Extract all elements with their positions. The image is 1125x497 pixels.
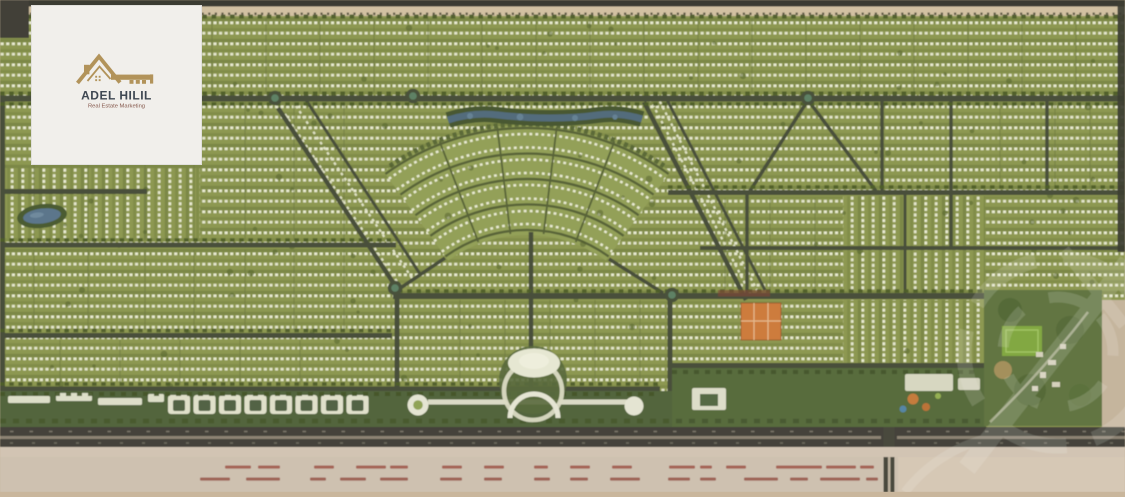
svg-text:ADEL HILIL: ADEL HILIL	[81, 89, 152, 103]
svg-text:Real Estate Marketing: Real Estate Marketing	[88, 103, 145, 109]
